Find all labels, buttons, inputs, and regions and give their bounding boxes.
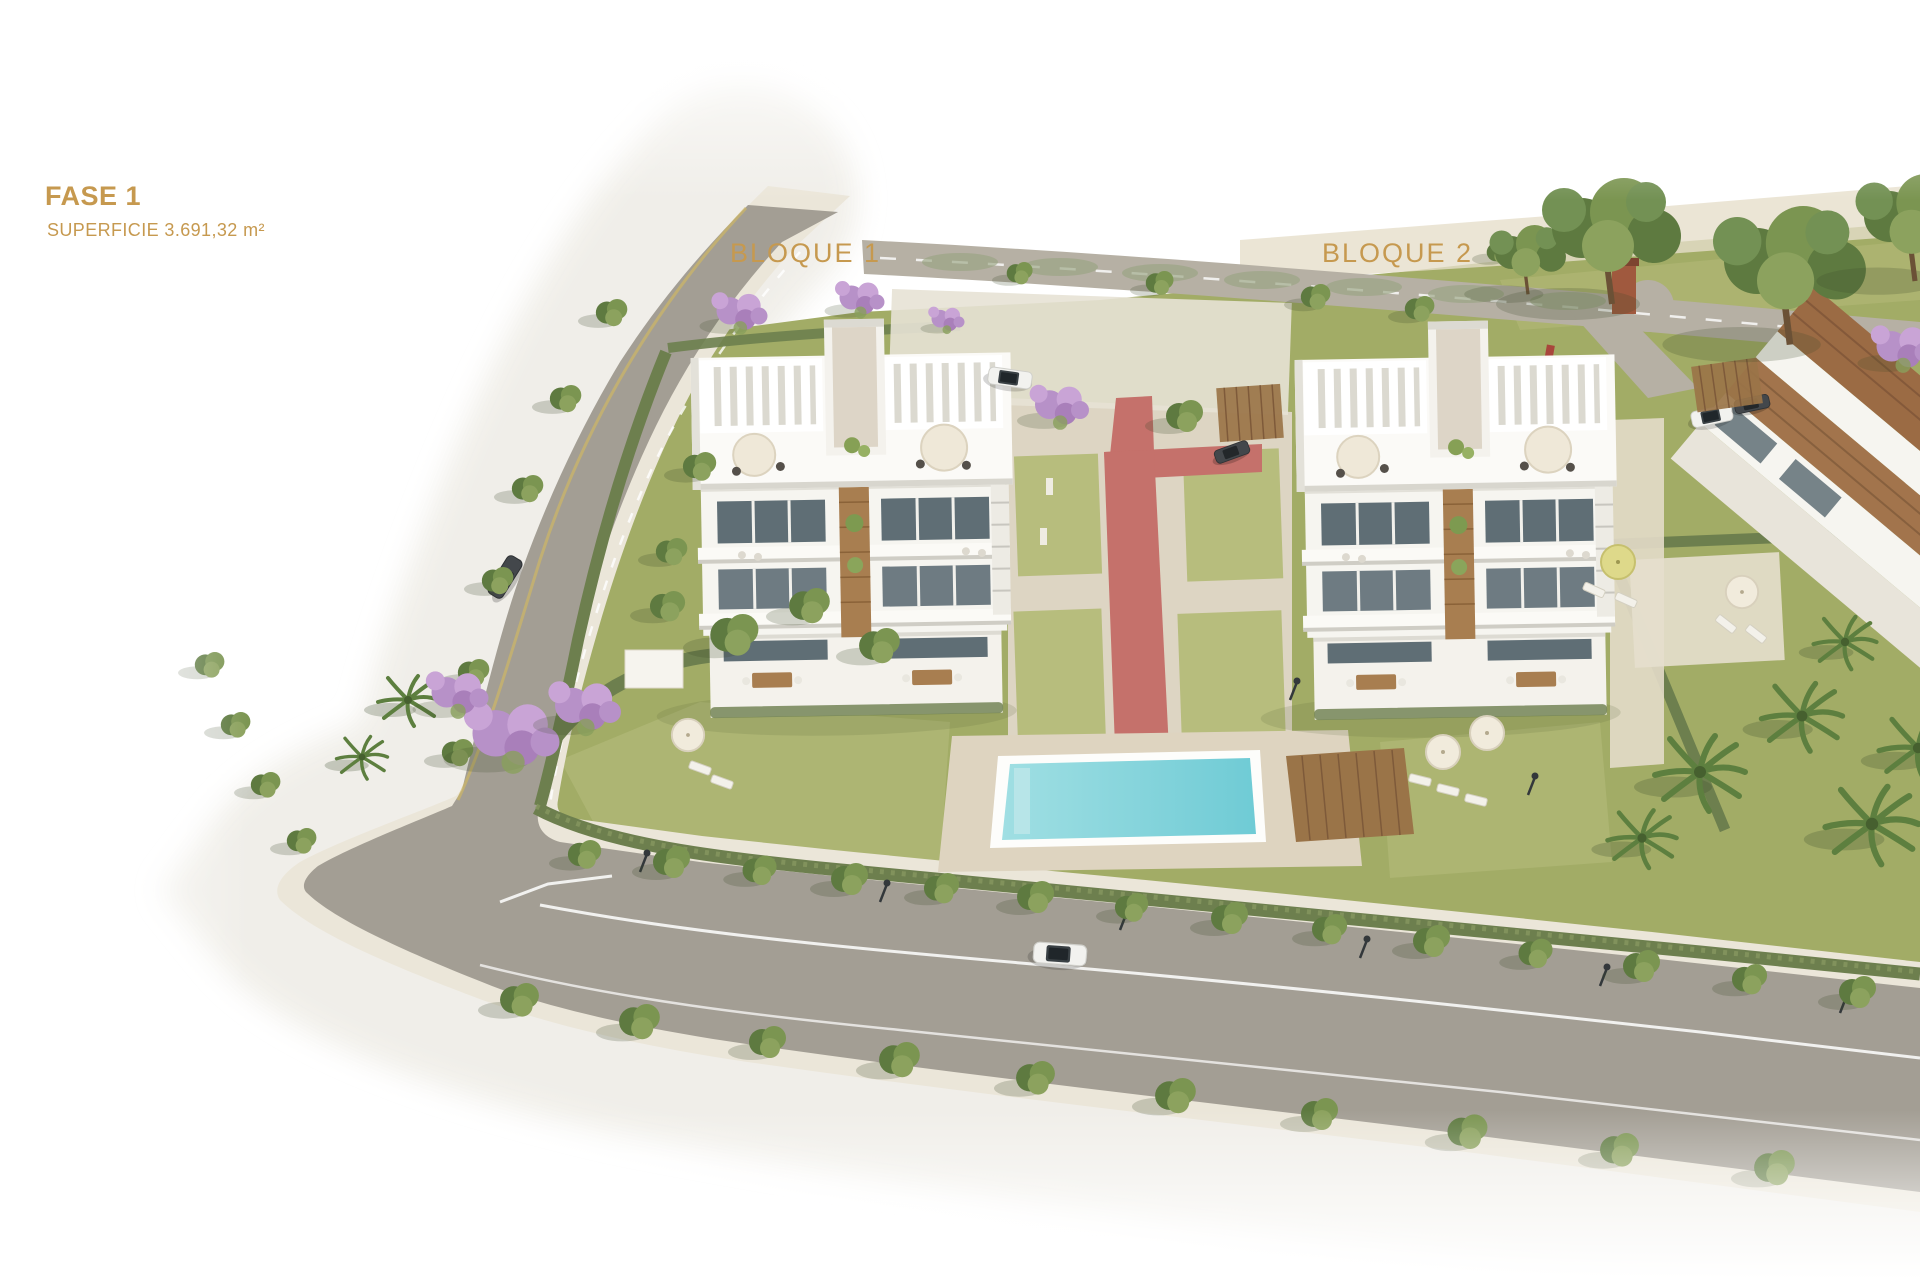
site-render [0, 0, 1920, 1280]
phase-label: FASE 1 [45, 181, 141, 212]
patio-right [1629, 552, 1784, 668]
area-label: SUPERFICIE 3.691,32 m² [47, 220, 265, 241]
block2-label: BLOQUE 2 [1322, 238, 1473, 269]
pool-water [1002, 758, 1256, 840]
fade-bottom [0, 1110, 1920, 1280]
pavilion [625, 650, 683, 688]
pool-steps [1014, 768, 1030, 834]
block1-label: BLOQUE 1 [730, 238, 881, 269]
site-render-page: FASE 1 SUPERFICIE 3.691,32 m² BLOQUE 1 B… [0, 0, 1920, 1280]
fade-top [0, 0, 1920, 200]
